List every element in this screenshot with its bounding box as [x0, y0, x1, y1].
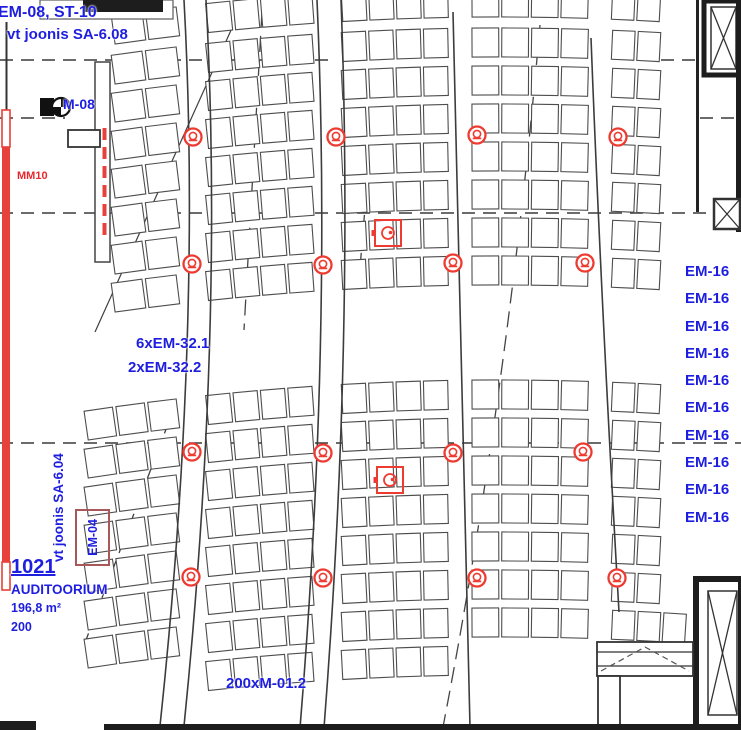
- seat: [260, 0, 287, 27]
- seat: [260, 388, 287, 419]
- seat: [637, 0, 661, 22]
- seat: [637, 611, 661, 641]
- em16-label: EM-16: [685, 285, 741, 312]
- seat: [472, 608, 499, 637]
- seat: [260, 74, 287, 105]
- seat: [260, 502, 287, 533]
- seat: [423, 380, 448, 410]
- seat: [423, 180, 448, 210]
- speaker-symbol: [610, 129, 627, 146]
- seat: [637, 221, 661, 251]
- seat: [206, 269, 233, 300]
- em16-label: EM-16: [685, 476, 741, 503]
- seat: [369, 0, 394, 20]
- seat: [502, 256, 529, 285]
- seat: [531, 180, 558, 209]
- speaker-symbol: [185, 129, 202, 146]
- seat: [502, 218, 529, 247]
- seat: [369, 68, 394, 98]
- seat: [472, 218, 499, 247]
- seat: [423, 418, 448, 448]
- seat: [206, 393, 233, 424]
- seat: [531, 418, 558, 447]
- seat: [611, 496, 635, 526]
- seat: [145, 275, 179, 308]
- em16-label: EM-16: [685, 394, 741, 421]
- speaker-symbol: [575, 444, 592, 461]
- seat: [233, 77, 260, 108]
- seat: [472, 418, 499, 447]
- seat: [531, 142, 558, 171]
- seat: [369, 534, 394, 564]
- seat: [423, 218, 448, 248]
- speaker-symbol: [184, 444, 201, 461]
- seat: [502, 494, 529, 523]
- seat: [502, 532, 529, 561]
- em16-label: EM-16: [685, 367, 741, 394]
- seat: [637, 573, 661, 603]
- seat: [502, 570, 529, 599]
- seat: [288, 72, 314, 103]
- seat: [502, 418, 529, 447]
- seat: [396, 0, 421, 19]
- seat: [396, 105, 421, 135]
- seat: [341, 611, 367, 641]
- seat: [288, 110, 314, 141]
- seat: [116, 479, 148, 512]
- speaker-symbol: [328, 129, 345, 146]
- seat: [561, 571, 589, 601]
- seat: [206, 469, 233, 500]
- seat: [396, 381, 421, 411]
- seat: [502, 104, 529, 133]
- seat: [260, 578, 287, 609]
- seat: [148, 627, 180, 659]
- seat: [472, 380, 499, 409]
- em04-box: EM-04: [75, 509, 110, 566]
- seat: [637, 69, 661, 99]
- seat: [423, 104, 448, 134]
- seat: [145, 47, 179, 80]
- seat: [531, 456, 558, 485]
- room-capacity: 200: [11, 621, 32, 634]
- seat: [561, 219, 589, 249]
- seat: [233, 581, 260, 612]
- seat: [145, 199, 179, 232]
- seat: [502, 180, 529, 209]
- seat: [148, 475, 180, 507]
- seat: [369, 458, 394, 488]
- seat: [260, 616, 287, 647]
- seat: [423, 456, 448, 486]
- speaker-symbol: [469, 127, 486, 144]
- seat: [502, 66, 529, 95]
- seat: [116, 631, 148, 664]
- seat: [288, 614, 314, 645]
- seat: [288, 224, 314, 255]
- seat: [637, 145, 661, 175]
- seat: [423, 66, 448, 96]
- seat: [233, 153, 260, 184]
- seat: [396, 29, 421, 59]
- room-number: 1021: [11, 557, 56, 578]
- seat: [502, 456, 529, 485]
- ref-label-top-1: EM-08, ST-10: [0, 5, 97, 22]
- seat: [396, 533, 421, 563]
- seat: [423, 0, 448, 18]
- seat: [561, 67, 589, 97]
- speaker-symbol: [577, 255, 594, 272]
- seat: [341, 573, 367, 603]
- speaker-symbol: [183, 569, 200, 586]
- seat: [611, 258, 635, 288]
- seat: [341, 459, 367, 489]
- seat: [611, 420, 635, 450]
- seat: [260, 112, 287, 143]
- seat: [288, 262, 314, 293]
- seat: [637, 259, 661, 289]
- speaker-symbol: [445, 445, 462, 462]
- seat: [233, 505, 260, 536]
- seat: [369, 648, 394, 678]
- seat: [561, 29, 589, 59]
- em04-label: EM-04: [86, 519, 100, 556]
- seat: [502, 142, 529, 171]
- seat: [233, 467, 260, 498]
- seat: [206, 431, 233, 462]
- seat: [637, 383, 661, 413]
- seat: [260, 188, 287, 219]
- seat: [472, 180, 499, 209]
- wall-niche: [68, 130, 100, 147]
- speaker-symbol: [315, 445, 332, 462]
- seat: [233, 391, 260, 422]
- seat: [396, 257, 421, 287]
- aisle-line: [453, 12, 470, 727]
- seat: [637, 31, 661, 61]
- seat: [369, 144, 394, 174]
- seat: [531, 28, 558, 57]
- seat: [288, 386, 314, 417]
- seat: [341, 535, 367, 565]
- seat: [145, 237, 179, 270]
- seat: [341, 31, 367, 61]
- em16-label: EM-16: [685, 449, 741, 476]
- seat: [561, 609, 589, 639]
- em16-label: EM-16: [685, 504, 741, 531]
- seat: [423, 646, 448, 676]
- seat: [206, 507, 233, 538]
- seat: [233, 191, 260, 222]
- seat: [611, 610, 635, 640]
- seat: [148, 437, 180, 469]
- seat: [637, 535, 661, 565]
- seat: [472, 456, 499, 485]
- seat: [637, 183, 661, 213]
- seat: [233, 39, 260, 70]
- seat: [423, 570, 448, 600]
- seat: [116, 441, 148, 474]
- seat: [233, 429, 260, 460]
- seat: [260, 226, 287, 257]
- seat: [611, 458, 635, 488]
- seat: [260, 426, 287, 457]
- speaker-symbol: [315, 257, 332, 274]
- seat: [531, 104, 558, 133]
- seat: [116, 517, 148, 550]
- seat: [472, 494, 499, 523]
- ref-label-left-vertical: vt joonis SA-6.04: [52, 422, 66, 562]
- seat: [662, 613, 686, 643]
- seat: [472, 256, 499, 285]
- em16-label-column: EM-16EM-16EM-16EM-16EM-16EM-16EM-16EM-16…: [685, 258, 741, 531]
- seat: [260, 464, 287, 495]
- seat: [396, 219, 421, 249]
- seat: [341, 421, 367, 451]
- seat: [561, 495, 589, 525]
- seat: [145, 123, 179, 156]
- seat: [341, 497, 367, 527]
- seat: [611, 182, 635, 212]
- seat: [637, 459, 661, 489]
- seat: [206, 621, 233, 652]
- seat: [561, 181, 589, 211]
- seat: [561, 381, 589, 411]
- em16-label: EM-16: [685, 258, 741, 285]
- seat: [531, 380, 558, 409]
- seat: [423, 532, 448, 562]
- seat: [206, 117, 233, 148]
- em16-label: EM-16: [685, 313, 741, 340]
- seat: [531, 0, 558, 18]
- em32-label-2: 2xEM-32.2: [128, 360, 201, 376]
- seat: [561, 105, 589, 135]
- seat: [111, 89, 146, 122]
- seat: [611, 382, 635, 412]
- seat: [369, 30, 394, 60]
- seat: [472, 66, 499, 95]
- seat: [84, 445, 117, 478]
- seat: [233, 229, 260, 260]
- em16-label: EM-16: [685, 340, 741, 367]
- seat: [502, 608, 529, 637]
- m08-label: M-08: [63, 97, 95, 112]
- riser-strip-outline: [2, 562, 10, 590]
- seat: [145, 85, 179, 118]
- seat: [206, 231, 233, 262]
- seat: [84, 597, 117, 630]
- seat: [396, 143, 421, 173]
- seat: [111, 241, 146, 274]
- seat: [472, 28, 499, 57]
- seat: [561, 143, 589, 173]
- wall-fill: [0, 721, 36, 730]
- seat: [561, 533, 589, 563]
- seat: [423, 28, 448, 58]
- wall-stub: [598, 676, 620, 728]
- seat: [396, 609, 421, 639]
- seat: [531, 66, 558, 95]
- seat: [116, 593, 148, 626]
- seat: [288, 424, 314, 455]
- seat: [111, 279, 146, 312]
- seat: [288, 148, 314, 179]
- seat: [148, 399, 180, 431]
- speaker-symbol: [609, 570, 626, 587]
- seat: [369, 420, 394, 450]
- seat: [148, 513, 180, 545]
- wall-fill: [104, 724, 741, 730]
- seat: [369, 572, 394, 602]
- seat: [116, 403, 148, 436]
- seat: [637, 107, 661, 137]
- seat: [233, 543, 260, 574]
- seat: [472, 532, 499, 561]
- seat: [637, 497, 661, 527]
- seat: [369, 182, 394, 212]
- seat: [423, 142, 448, 172]
- seat: [531, 256, 558, 285]
- seat: [288, 500, 314, 531]
- seat: [396, 647, 421, 677]
- seat: [260, 540, 287, 571]
- seat: [148, 589, 180, 621]
- mm10-label: MM10: [17, 171, 48, 183]
- riser-strip: [2, 147, 10, 562]
- seat: [145, 161, 179, 194]
- seat: [637, 421, 661, 451]
- plan-drawing: [0, 0, 741, 730]
- seat: [502, 0, 529, 17]
- seat: [206, 155, 233, 186]
- floor-plan-canvas: EM-08, ST-10 vt joonis SA-6.08 M-08 MM10…: [0, 0, 741, 730]
- room-name: AUDITOORIUM: [11, 583, 108, 597]
- seat: [341, 649, 367, 679]
- seat: [531, 494, 558, 523]
- seat: [233, 115, 260, 146]
- seat: [260, 36, 287, 67]
- seat: [502, 28, 529, 57]
- speaker-symbol: [315, 570, 332, 587]
- seat: [611, 0, 635, 20]
- seat: [341, 69, 367, 99]
- riser-strip-outline: [2, 110, 10, 147]
- seat: [206, 545, 233, 576]
- seat: [206, 583, 233, 614]
- seat: [423, 608, 448, 638]
- speaker-symbol: [445, 255, 462, 272]
- seat: [111, 51, 146, 84]
- room-area: 196,8 m²: [11, 602, 61, 615]
- seat: [84, 407, 117, 440]
- seat: [233, 619, 260, 650]
- speaker-symbol: [184, 256, 201, 273]
- seat: [84, 635, 117, 668]
- seat: [611, 220, 635, 250]
- seat: [369, 106, 394, 136]
- seat: [341, 0, 367, 21]
- ref-label-top-2: vt joonis SA-6.08: [7, 27, 128, 43]
- em16-label: EM-16: [685, 422, 741, 449]
- seat: [531, 608, 558, 637]
- seat: [396, 457, 421, 487]
- seat-count-label: 200xM-01.2: [226, 676, 306, 692]
- seat: [611, 144, 635, 174]
- seat: [472, 0, 499, 17]
- seat: [111, 165, 146, 198]
- seat: [369, 258, 394, 288]
- seat: [502, 380, 529, 409]
- seat: [116, 555, 148, 588]
- seat: [288, 462, 314, 493]
- seat: [260, 150, 287, 181]
- wall-fill: [736, 0, 741, 232]
- seat: [341, 383, 367, 413]
- seat: [206, 1, 233, 32]
- seat: [531, 218, 558, 247]
- seat: [611, 68, 635, 98]
- seat: [111, 127, 146, 160]
- seat: [611, 30, 635, 60]
- seat: [233, 0, 260, 30]
- seat: [233, 267, 260, 298]
- seat: [423, 494, 448, 524]
- seat: [260, 264, 287, 295]
- seat: [396, 181, 421, 211]
- seat: [396, 419, 421, 449]
- seat: [396, 571, 421, 601]
- speaker-symbol: [469, 570, 486, 587]
- seat: [531, 532, 558, 561]
- seat: [369, 610, 394, 640]
- seat: [288, 186, 314, 217]
- seat: [369, 382, 394, 412]
- seat: [561, 0, 589, 18]
- seat: [396, 495, 421, 525]
- seat: [288, 0, 314, 25]
- seat: [288, 34, 314, 65]
- em32-label-1: 6xEM-32.1: [136, 336, 209, 352]
- seat: [472, 142, 499, 171]
- seat: [111, 203, 146, 236]
- seat: [206, 193, 233, 224]
- seat: [288, 538, 314, 569]
- seat: [369, 496, 394, 526]
- seat: [396, 67, 421, 97]
- seat: [531, 570, 558, 599]
